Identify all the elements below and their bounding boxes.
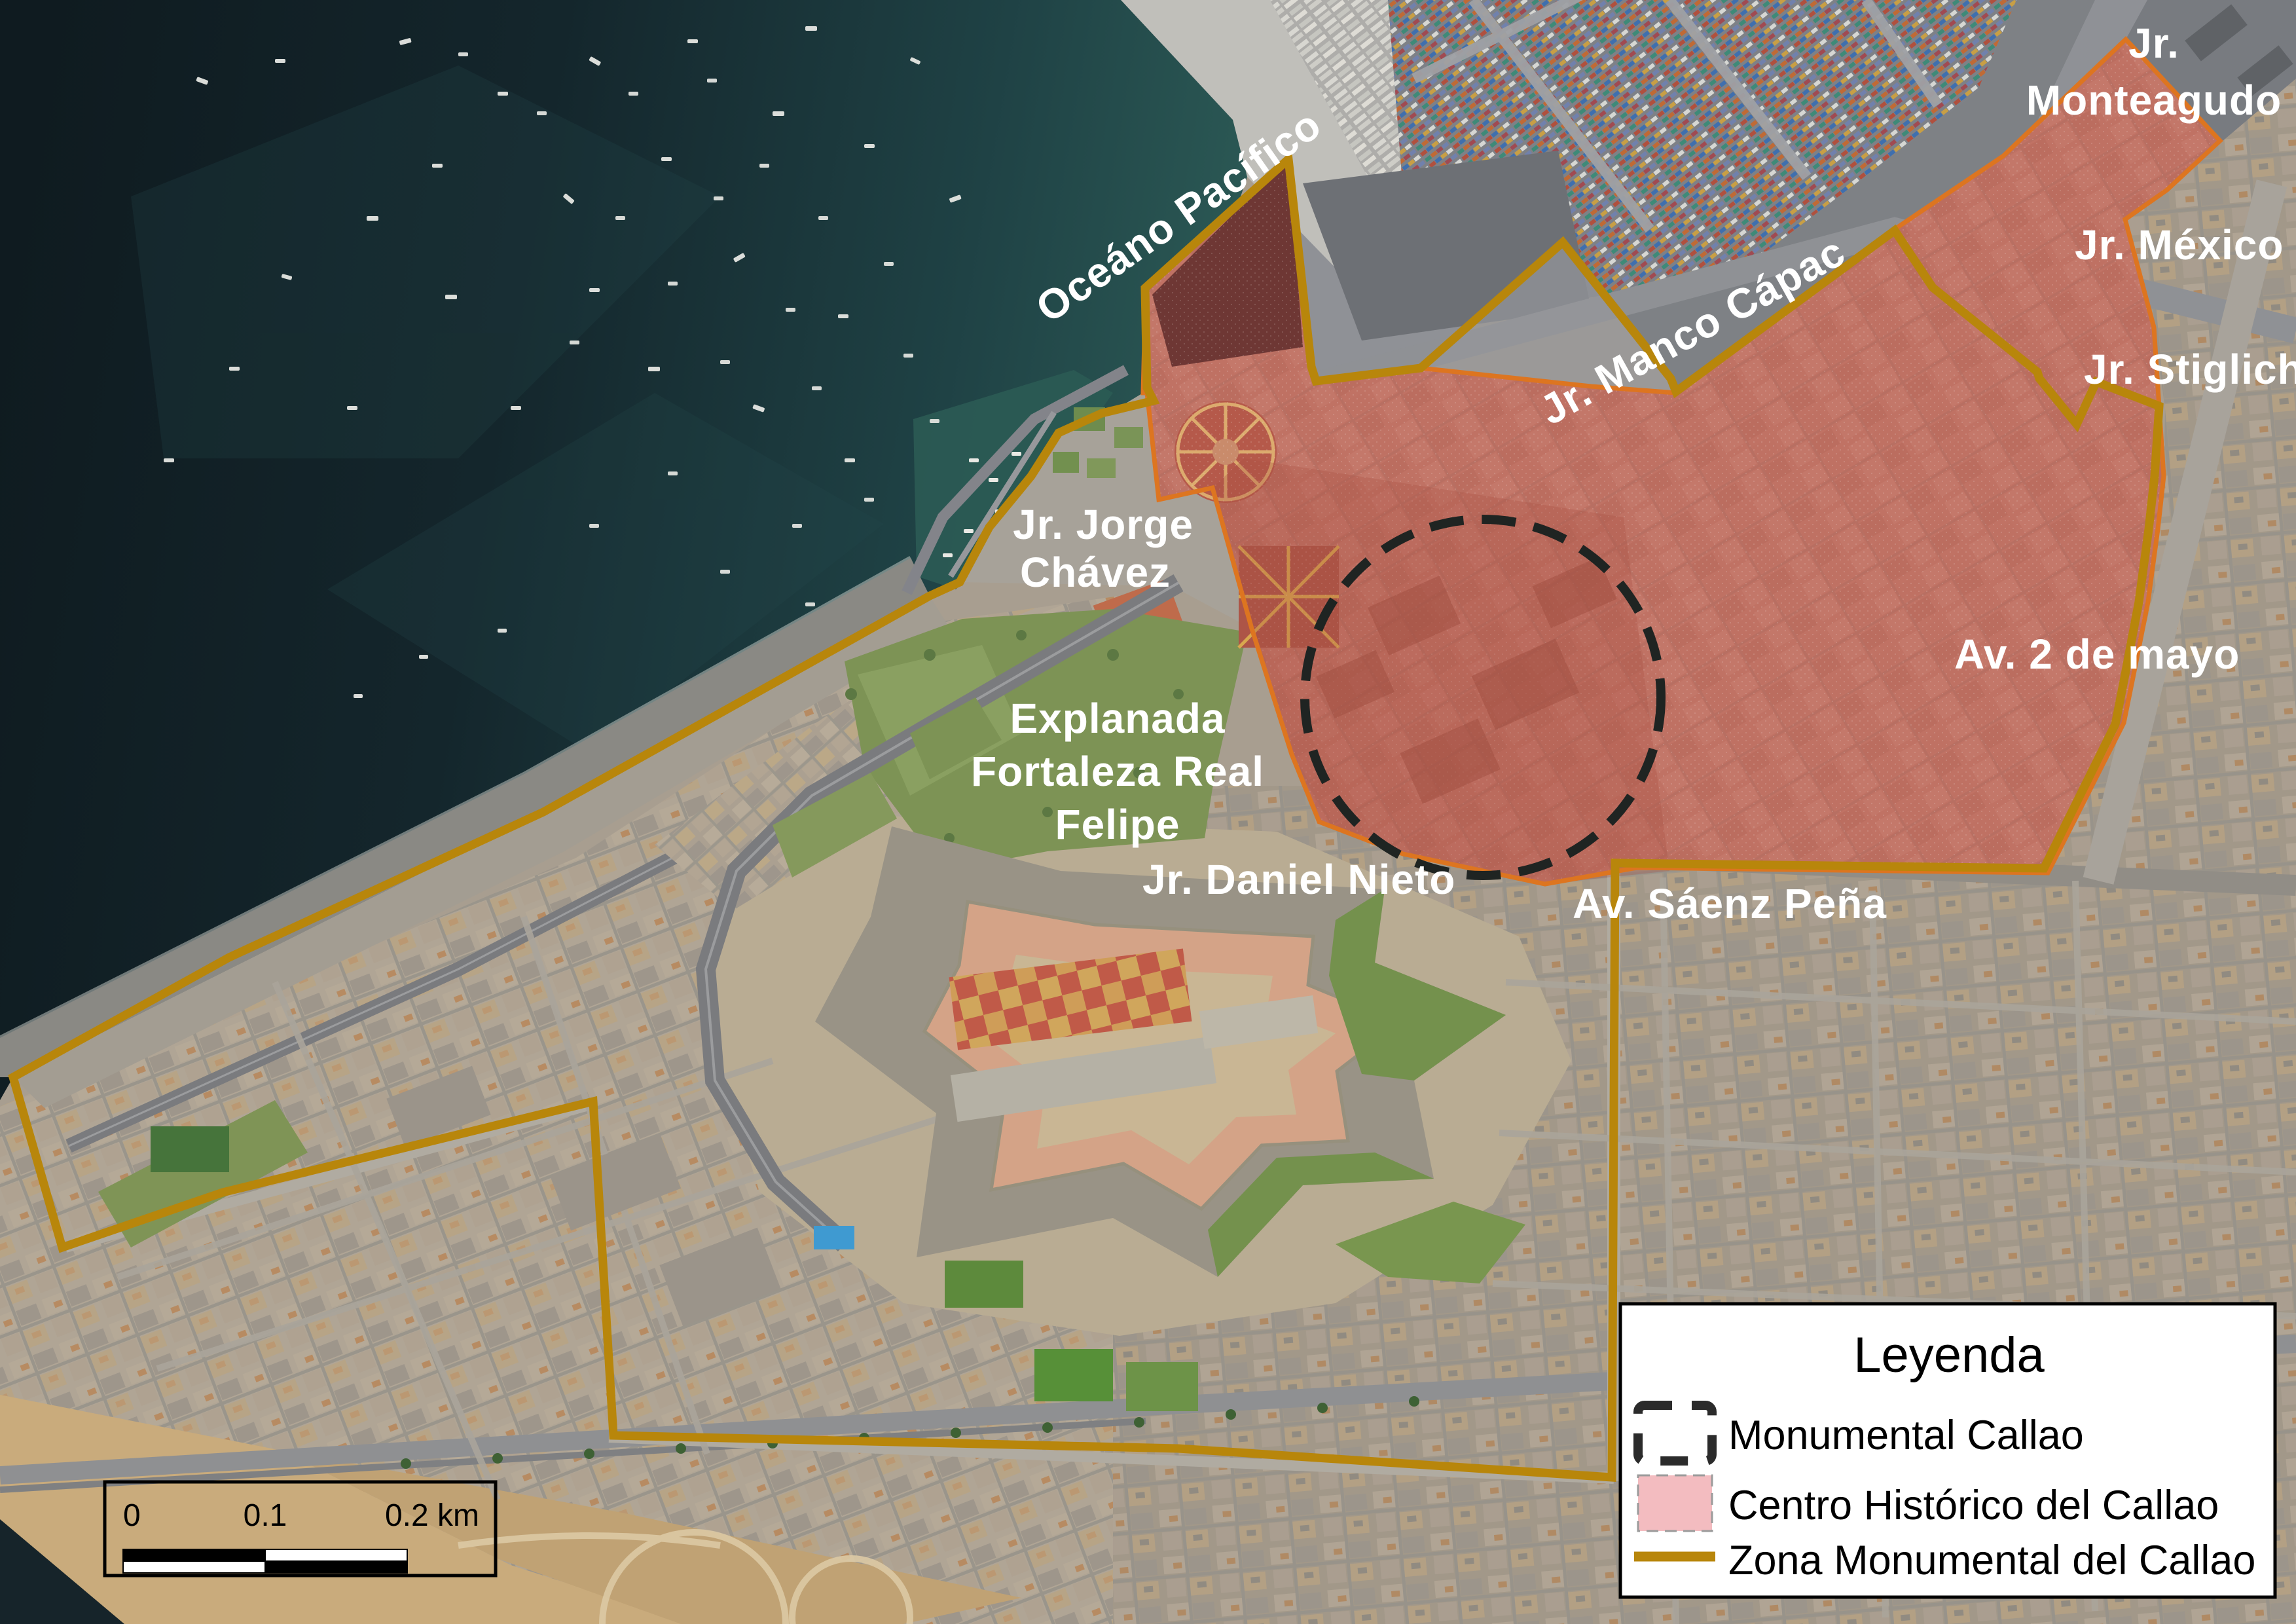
svg-text:Jr. Stiglich: Jr. Stiglich bbox=[2084, 346, 2296, 393]
svg-text:Zona Monumental del Callao: Zona Monumental del Callao bbox=[1728, 1538, 2255, 1583]
svg-text:Leyenda: Leyenda bbox=[1853, 1327, 2045, 1383]
svg-text:Jr.: Jr. bbox=[2128, 20, 2179, 67]
svg-text:Monteagudo: Monteagudo bbox=[2026, 77, 2282, 124]
svg-text:0.2 km: 0.2 km bbox=[385, 1498, 479, 1533]
svg-text:Av. Sáenz Peña: Av. Sáenz Peña bbox=[1573, 880, 1887, 927]
svg-text:0: 0 bbox=[123, 1498, 141, 1533]
svg-text:0.1: 0.1 bbox=[244, 1498, 287, 1533]
svg-text:Fortaleza Real: Fortaleza Real bbox=[971, 748, 1264, 795]
svg-text:Explanada: Explanada bbox=[1010, 695, 1225, 742]
svg-text:Centro Histórico del Callao: Centro Histórico del Callao bbox=[1728, 1483, 2219, 1528]
svg-text:Chávez: Chávez bbox=[1020, 549, 1171, 596]
svg-text:Monumental Callao: Monumental Callao bbox=[1728, 1412, 2084, 1458]
svg-text:Jr. México: Jr. México bbox=[2075, 221, 2284, 268]
svg-text:Jr. Daniel Nieto: Jr. Daniel Nieto bbox=[1142, 856, 1455, 903]
svg-text:Av. 2 de mayo: Av. 2 de mayo bbox=[1954, 631, 2240, 678]
svg-text:Jr. Jorge: Jr. Jorge bbox=[1013, 501, 1194, 548]
svg-text:Felipe: Felipe bbox=[1055, 801, 1180, 848]
